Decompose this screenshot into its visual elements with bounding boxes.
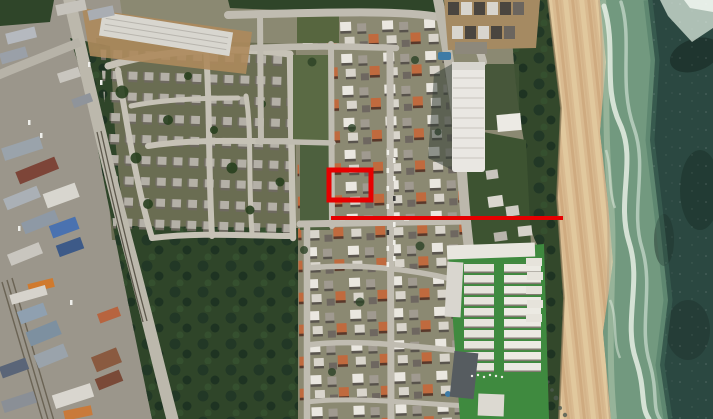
courtyard — [455, 42, 487, 54]
satellite-map — [0, 0, 713, 419]
street — [258, 141, 333, 143]
apartment-complex — [445, 242, 549, 419]
map-canvas — [0, 0, 713, 419]
swimming-pool — [438, 52, 451, 60]
green-plot — [297, 16, 339, 43]
street — [290, 54, 293, 238]
street — [300, 221, 467, 224]
ocean — [648, 0, 713, 419]
tall-apartment-building — [452, 62, 485, 172]
dark-roof-building — [450, 351, 479, 399]
white-building — [478, 394, 505, 417]
street — [152, 235, 292, 238]
street — [390, 48, 391, 419]
green-plot — [300, 142, 330, 230]
street — [252, 47, 396, 49]
dune-building — [496, 113, 521, 132]
vegetation-topleft — [0, 0, 54, 26]
green-plot — [293, 55, 331, 141]
street — [260, 15, 261, 142]
townhouse-row — [452, 26, 515, 39]
apartment-building — [445, 262, 464, 318]
